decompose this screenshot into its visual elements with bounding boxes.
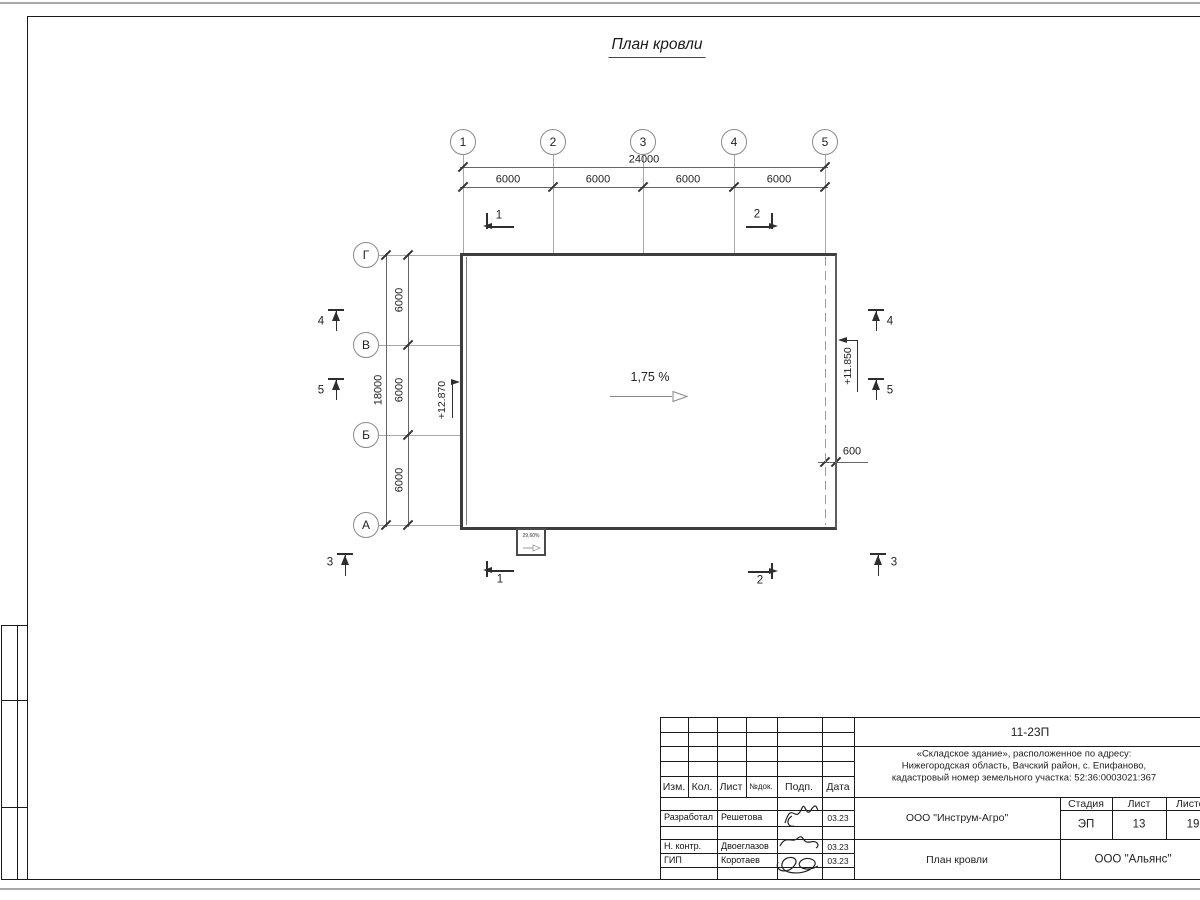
section-mark-1-bottom-arrow xyxy=(483,567,492,573)
drawing-title: План кровли xyxy=(926,855,988,866)
roof-inner-left-line xyxy=(466,257,467,525)
project-description-line: «Складское здание», расположенное по адр… xyxy=(917,749,1132,759)
sheet-edge-bottom xyxy=(0,888,1200,890)
canopy-slope-arrow xyxy=(522,544,542,552)
doc-code: 11-23П xyxy=(1011,726,1049,738)
axis-label-g: Г xyxy=(363,248,370,262)
axis-label-v: В xyxy=(362,338,370,352)
elevation-right-leader xyxy=(847,340,857,341)
dim-label-bay: 6000 xyxy=(395,378,406,402)
axis-label-3: 3 xyxy=(640,135,647,149)
section-mark-2-top-arrow xyxy=(769,223,778,229)
canopy-slope-label: 29,60% xyxy=(518,533,544,539)
title-block-line xyxy=(660,717,661,879)
sheet-value: 13 xyxy=(1133,819,1146,831)
signer-role: Разработал xyxy=(664,813,713,822)
title-block-line xyxy=(660,810,854,811)
dim-line-bays-left xyxy=(408,253,409,527)
sheet-edge-top xyxy=(0,2,1200,4)
grid-line-axis-5 xyxy=(825,155,826,253)
sheet-title: План кровли xyxy=(609,36,706,58)
dim-label-bay: 6000 xyxy=(395,468,406,492)
view-mark-3-left-label: 3 xyxy=(327,557,333,569)
title-block-line xyxy=(660,717,1200,718)
view-mark-3-left-arrow xyxy=(341,555,349,565)
title-block-line xyxy=(688,717,689,797)
grid-line-axis-2 xyxy=(553,155,554,253)
title-block-line xyxy=(660,776,854,777)
view-mark-4-left-arrow xyxy=(332,311,340,321)
sheets-label: Листов xyxy=(1176,799,1200,810)
signer-name: Коротаев xyxy=(721,856,760,865)
drawing-sheet: План кровли 1 2 3 4 5 Г В Б А 24000 6000… xyxy=(0,0,1200,900)
side-stamp-line xyxy=(1,625,27,626)
col-header-izm: Изм. xyxy=(663,782,686,793)
col-header-kol: Кол. xyxy=(692,782,713,793)
view-mark-4-left-label: 4 xyxy=(318,316,324,328)
title-block-line xyxy=(1060,797,1061,879)
axis-bubble-1: 1 xyxy=(450,129,476,155)
dim-label-bay: 6000 xyxy=(676,175,700,186)
title-block-line xyxy=(660,839,1200,840)
frame-left xyxy=(27,16,28,880)
signer-date: 03.23 xyxy=(827,857,848,866)
view-mark-5-left-label: 5 xyxy=(318,385,324,397)
signer-name: Решетова xyxy=(721,813,762,822)
elevation-left-label: +12.870 xyxy=(437,381,448,419)
stage-label: Стадия xyxy=(1068,799,1104,810)
section-mark-1-top-label: 1 xyxy=(496,210,502,222)
slope-arrow-head xyxy=(672,390,689,403)
view-mark-5-left-arrow xyxy=(332,380,340,390)
dim-label-overhang: 600 xyxy=(843,447,861,458)
axis-bubble-4: 4 xyxy=(721,129,747,155)
title-block-line xyxy=(717,717,718,879)
signer-date: 03.23 xyxy=(827,814,848,823)
title-block-line xyxy=(746,717,747,797)
dim-label-bay: 6000 xyxy=(586,175,610,186)
view-mark-5-right-arrow xyxy=(872,380,880,390)
title-block-line xyxy=(660,853,854,854)
axis-bubble-g: Г xyxy=(353,242,379,268)
title-block-line xyxy=(660,797,1200,798)
col-header-podp: Подп. xyxy=(785,782,813,793)
axis-bubble-v: В xyxy=(353,332,379,358)
designer-org: ООО "Инструм-Агро" xyxy=(906,813,1008,824)
elevation-right-leader xyxy=(857,340,858,392)
slope-label: 1,75 % xyxy=(631,371,670,384)
axis-bubble-a: А xyxy=(353,512,379,538)
title-block-line xyxy=(660,826,854,827)
project-description-line: Нижегородская область, Вачский район, с.… xyxy=(902,761,1146,771)
title-block-line xyxy=(1166,797,1167,839)
section-mark-1-top-arrow xyxy=(483,223,492,229)
title-block-line xyxy=(660,746,1200,747)
col-header-data: Дата xyxy=(826,782,849,793)
axis-label-2: 2 xyxy=(550,135,557,149)
customer-org: ООО "Альянс" xyxy=(1095,854,1172,866)
section-mark-2-bottom-arrow xyxy=(769,568,778,574)
title-block-line xyxy=(660,732,854,733)
axis-label-5: 5 xyxy=(822,135,829,149)
dim-label-total-top: 24000 xyxy=(629,155,660,166)
sheet-label: Лист xyxy=(1128,799,1151,810)
grid-line-axis-g xyxy=(379,255,460,256)
sheets-value: 19 xyxy=(1187,819,1200,831)
canopy: 29,60% xyxy=(516,528,546,556)
elevation-right-label: +11.850 xyxy=(843,347,854,384)
roof-outline xyxy=(460,253,837,530)
title-block-line xyxy=(660,761,854,762)
section-mark-2-top-label: 2 xyxy=(754,209,760,221)
side-stamp-line xyxy=(17,625,18,880)
axis-bubble-3: 3 xyxy=(630,129,656,155)
signer-name: Двоеглазов xyxy=(721,842,769,851)
grid-line-axis-b xyxy=(379,435,460,436)
side-stamp-line xyxy=(1,700,27,701)
axis-label-4: 4 xyxy=(731,135,738,149)
title-block-line xyxy=(854,717,855,879)
grid-line-axis-a xyxy=(379,525,460,526)
grid-line-axis-v xyxy=(379,345,460,346)
axis-label-b: Б xyxy=(362,428,370,442)
elevation-left-arrow xyxy=(451,379,460,385)
signature xyxy=(772,832,824,876)
axis-label-a: А xyxy=(362,518,370,532)
axis-bubble-b: Б xyxy=(353,422,379,448)
view-mark-4-right-label: 4 xyxy=(887,316,893,328)
signature xyxy=(780,798,820,828)
axis-bubble-2: 2 xyxy=(540,129,566,155)
view-mark-5-right-label: 5 xyxy=(887,385,893,397)
stage-value: ЭП xyxy=(1078,819,1095,831)
section-mark-2-bottom-label: 2 xyxy=(757,575,763,587)
section-mark-2-bottom-line xyxy=(748,571,771,573)
dim-label-bay: 6000 xyxy=(767,175,791,186)
project-description-line: кадастровый номер земельного участка: 52… xyxy=(892,773,1156,783)
elevation-left-leader xyxy=(452,382,453,418)
signer-date: 03.23 xyxy=(827,843,848,852)
frame-top xyxy=(27,16,1200,17)
dim-label-bay: 6000 xyxy=(496,175,520,186)
slope-arrow-line xyxy=(610,396,672,397)
title-block-line xyxy=(1112,797,1113,839)
section-mark-2-top-line xyxy=(746,226,771,228)
dim-line-total-top xyxy=(460,167,828,168)
dim-label-total-left: 18000 xyxy=(374,375,385,406)
view-mark-4-right-arrow xyxy=(872,311,880,321)
axis-label-1: 1 xyxy=(460,135,467,149)
dim-label-bay: 6000 xyxy=(395,288,406,312)
title-block-line xyxy=(1060,810,1200,811)
title-block-line xyxy=(660,867,854,868)
col-header-list: Лист xyxy=(720,782,743,793)
elevation-right-arrow xyxy=(838,337,847,343)
signer-role: ГИП xyxy=(664,856,682,865)
side-stamp-line xyxy=(1,625,2,880)
view-mark-3-right-label: 3 xyxy=(891,557,897,569)
axis-bubble-5: 5 xyxy=(812,129,838,155)
view-mark-3-right-arrow xyxy=(874,555,882,565)
col-header-ndoc: №док. xyxy=(749,783,772,791)
roof-eave-dashed-line xyxy=(825,257,826,525)
side-stamp-line xyxy=(1,807,27,808)
frame-bottom xyxy=(1,879,1200,880)
dim-line-total-left xyxy=(386,253,387,527)
section-mark-1-bottom-label: 1 xyxy=(497,574,503,586)
grid-line-axis-4 xyxy=(734,155,735,253)
signer-role: Н. контр. xyxy=(664,842,701,851)
grid-line-axis-3 xyxy=(643,155,644,253)
grid-line-axis-1 xyxy=(463,155,464,253)
